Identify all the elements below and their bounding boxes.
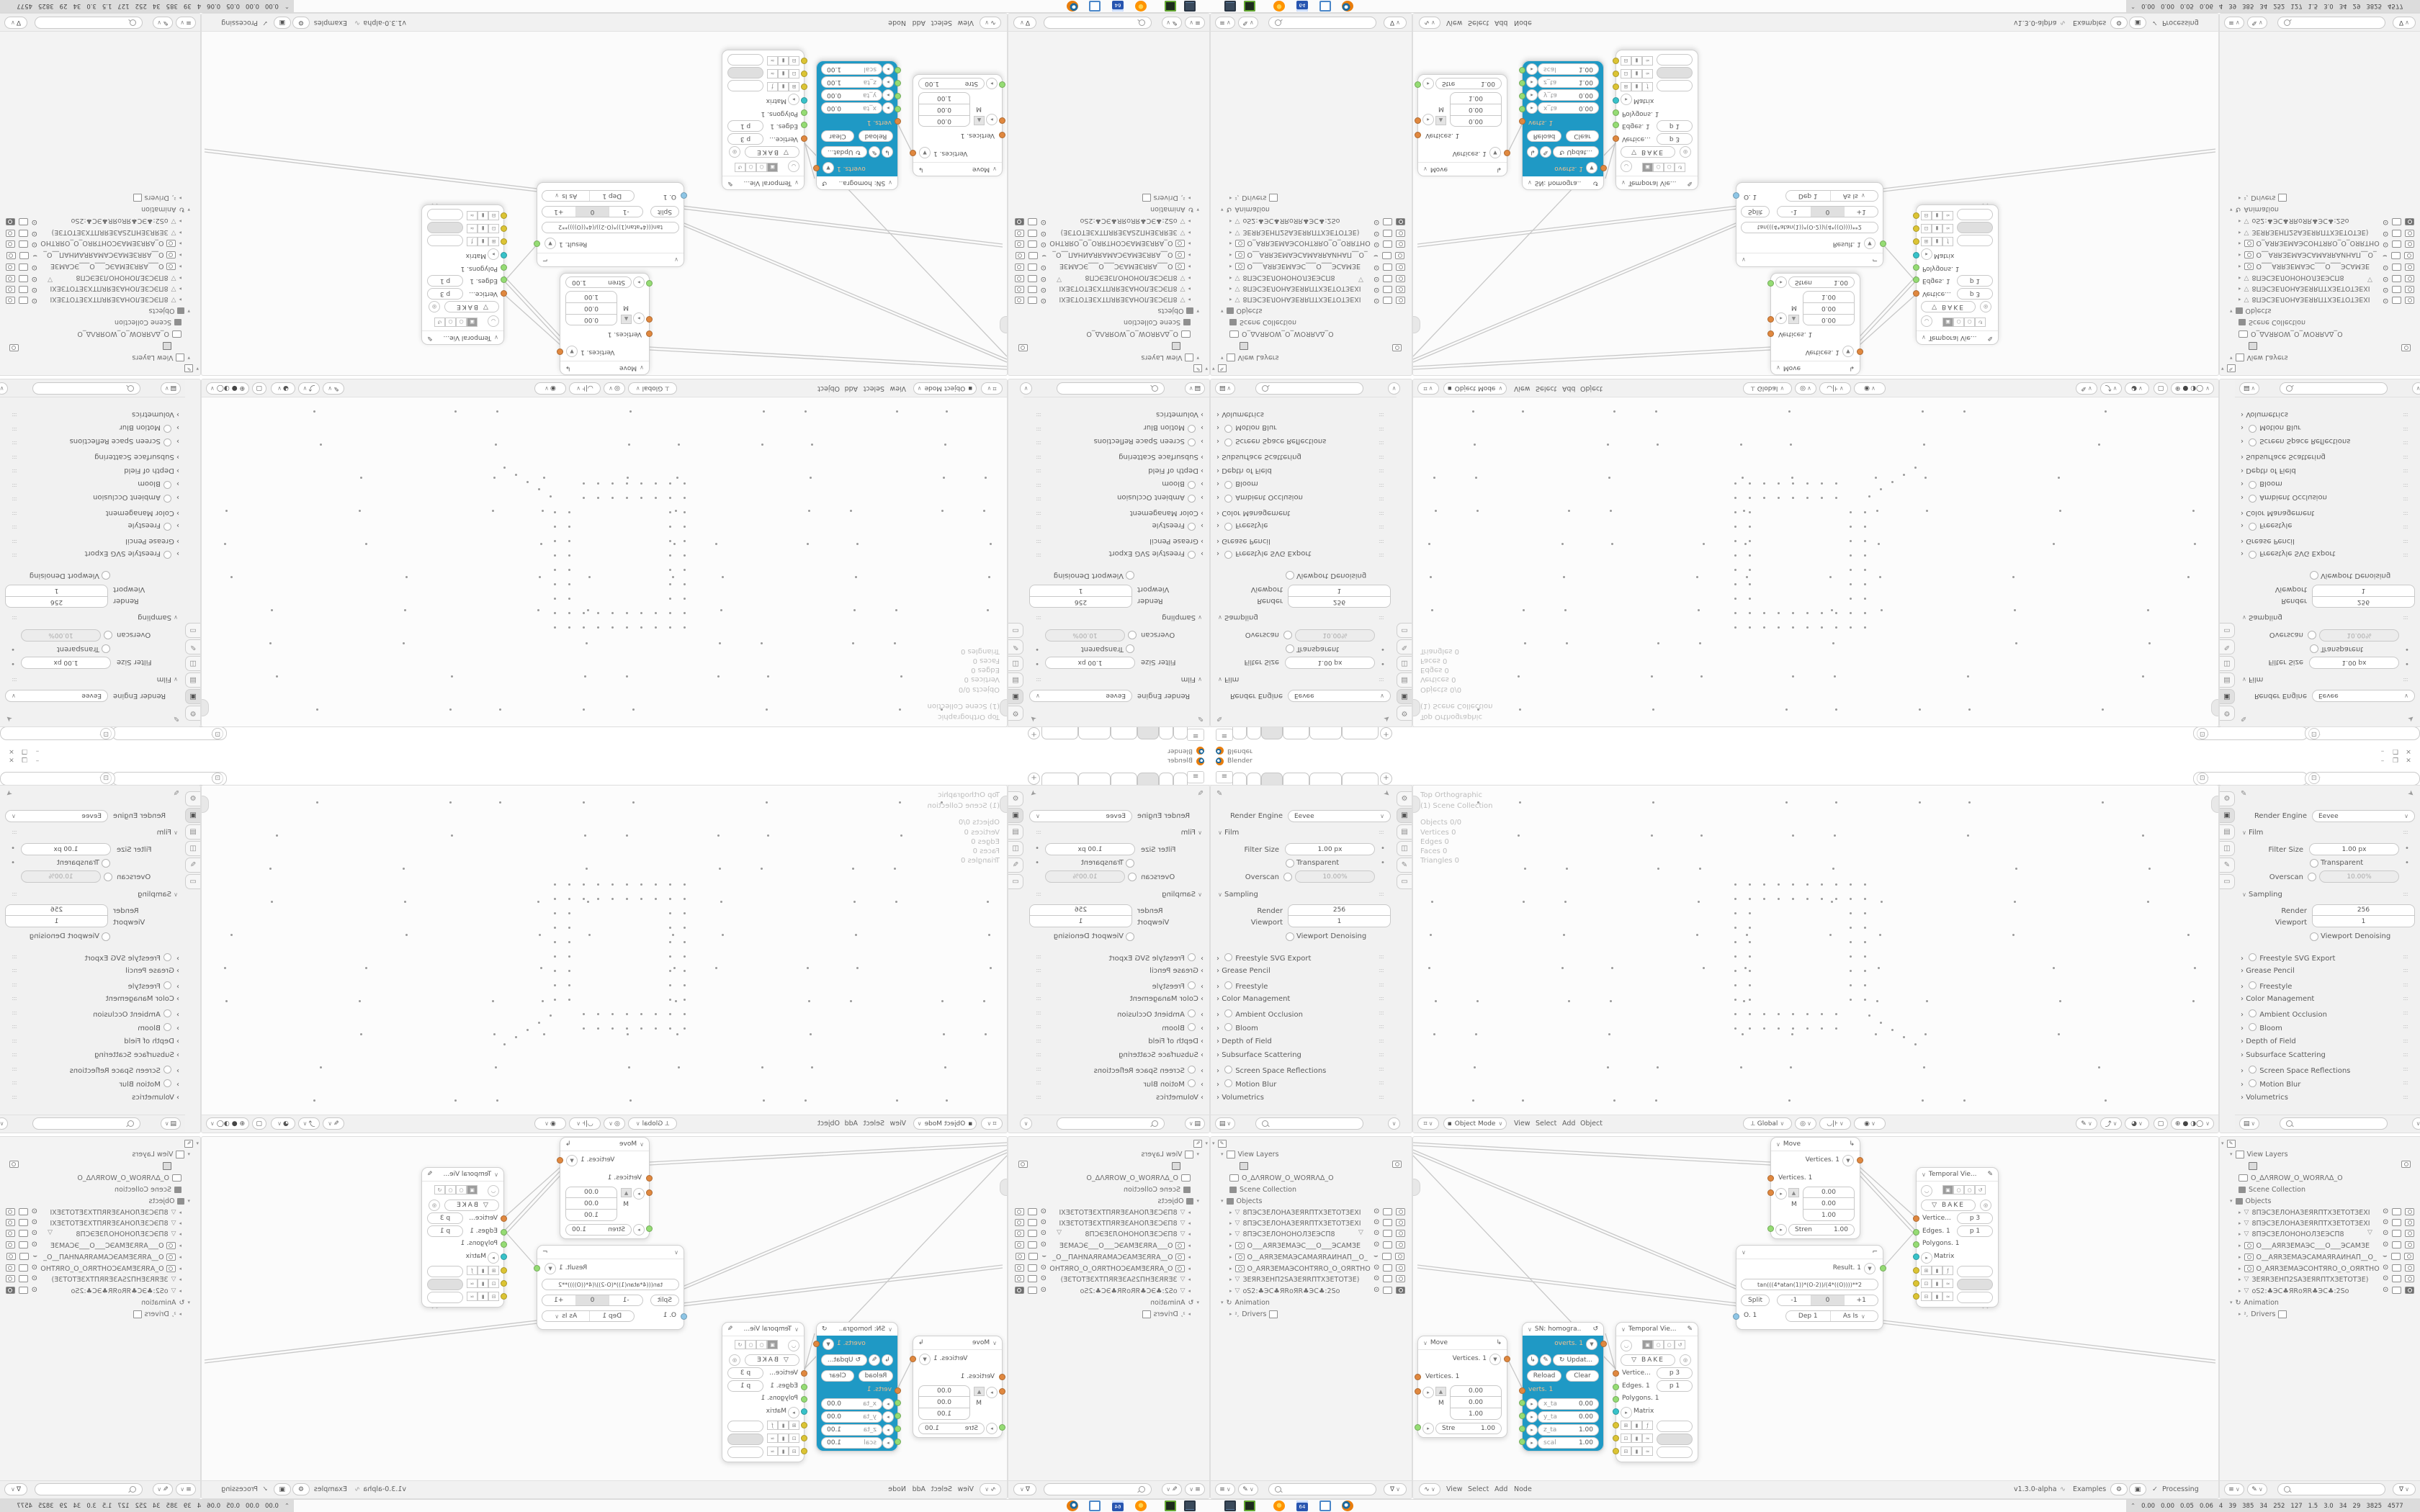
uv-row-buttons[interactable]: ⊡▮≈ bbox=[1621, 69, 1653, 78]
transform-orientation-dropdown[interactable]: ⟂ Global ∨ bbox=[1743, 382, 1792, 395]
input-socket[interactable] bbox=[501, 212, 507, 219]
node-editor[interactable]: ∨Move↳ Vertices. 1 ▼ Vertices. 1 ▸ ▲ M 0… bbox=[1412, 1136, 2219, 1499]
viewlayer-selector[interactable]: ▤∨ ⊡ bbox=[2305, 772, 2420, 786]
tree-row-animation[interactable]: ▾↻Animation bbox=[1221, 1297, 1270, 1308]
uv-field[interactable] bbox=[427, 1292, 463, 1303]
screen-icon[interactable] bbox=[1383, 1208, 1392, 1215]
copy-icon[interactable]: ⊡ bbox=[2308, 773, 2320, 784]
input-socket[interactable] bbox=[1613, 1370, 1619, 1377]
eye-icon[interactable]: ⊙ bbox=[1041, 240, 1047, 248]
vector-z-field[interactable]: 1.00 bbox=[1450, 1408, 1502, 1420]
input-socket[interactable] bbox=[501, 225, 507, 232]
tree-row-root[interactable]: ▾✎ bbox=[1212, 1138, 1227, 1148]
toggle-button[interactable]: ▸ bbox=[986, 1423, 998, 1434]
screen-icon[interactable] bbox=[1382, 1253, 1391, 1260]
image-viewer-icon[interactable] bbox=[1089, 1500, 1101, 1511]
output-socket[interactable] bbox=[534, 1265, 540, 1272]
uv-row-buttons[interactable]: ⊟▮≈ bbox=[467, 211, 499, 220]
uv-field[interactable] bbox=[427, 235, 463, 246]
sampling-section-header[interactable]: ∨ Sampling bbox=[138, 613, 178, 621]
toggle-button[interactable]: ▸ bbox=[1921, 248, 1932, 260]
uv-field[interactable] bbox=[1657, 1421, 1693, 1432]
reload-button[interactable]: Reload bbox=[859, 130, 893, 142]
section-row[interactable]: › Screen Space Reflections bbox=[2241, 437, 2350, 446]
object-row[interactable]: ▸▽ЗЕЯRЗЕНП2SАЗЕЯRПТХЗЕТОТЗЕ) bbox=[52, 1274, 181, 1284]
screen-icon[interactable] bbox=[1028, 287, 1037, 294]
sampling-section-header[interactable]: ∨ Sampling bbox=[1218, 891, 1258, 899]
camera-icon[interactable] bbox=[1015, 1219, 1024, 1226]
vector-y-field[interactable]: 0.00 bbox=[1450, 104, 1502, 115]
section-row[interactable]: › Depth of Field bbox=[2241, 1038, 2296, 1045]
vector-y-field[interactable]: 0.00 bbox=[1803, 1198, 1855, 1210]
section-row[interactable]: › Grease Pencil bbox=[2241, 537, 2295, 545]
search-input[interactable] bbox=[32, 1117, 140, 1130]
camera-icon[interactable] bbox=[1396, 1219, 1405, 1226]
transparent-checkbox[interactable] bbox=[102, 644, 110, 653]
proportional-edit-button[interactable]: ◉∨ bbox=[1854, 382, 1886, 395]
input-socket[interactable] bbox=[681, 1313, 687, 1320]
screen-icon[interactable] bbox=[1383, 1275, 1392, 1282]
tree-row-collection[interactable]: O_ΔΛЯROW_O_WOЯRΛΔ_O bbox=[1229, 1173, 1334, 1183]
uv-row-buttons[interactable]: ⊟▮≈ bbox=[1921, 211, 1953, 220]
uv-row-buttons[interactable]: ⊞▮ƒ bbox=[767, 1421, 799, 1430]
tab-tool-icon[interactable]: ⚙ bbox=[2220, 706, 2235, 721]
xray-button[interactable]: ▢ bbox=[2154, 1117, 2168, 1130]
toggle-button[interactable]: ▸ bbox=[633, 276, 645, 288]
input-socket[interactable] bbox=[1613, 1396, 1619, 1403]
object-row[interactable]: ▸▽8ПЭСЗЕЛОНАЗЕЯRПТХЗЕТОТЗЕХІ bbox=[1059, 294, 1191, 305]
node-editor[interactable]: ∨Move↳ Vertices. 1 ▼ Vertices. 1 ▸ ▲ M 0… bbox=[201, 1136, 1008, 1499]
node-editor[interactable]: ∨Move↳ Vertices. 1 ▼ Vertices. 1 ▸ ▲ M 0… bbox=[201, 13, 1008, 376]
tab-render-icon[interactable]: ▣ bbox=[2220, 689, 2235, 704]
render-engine-dropdown[interactable]: Eevee∨ bbox=[1288, 690, 1391, 702]
eye-icon[interactable]: ⊙ bbox=[1373, 1241, 1379, 1248]
section-row[interactable]: › Bloom bbox=[2241, 480, 2282, 489]
screen-icon[interactable] bbox=[19, 287, 28, 294]
eye-icon[interactable]: ⊙ bbox=[1041, 297, 1047, 305]
screen-icon[interactable] bbox=[1028, 1275, 1037, 1282]
eye-closed-icon[interactable]: ⌣ bbox=[2383, 252, 2388, 260]
x-translate-field[interactable]: x_ta0.00 bbox=[821, 102, 882, 114]
drag-handle-icon[interactable]: :::: bbox=[12, 677, 17, 683]
eye-icon[interactable]: ⊙ bbox=[32, 1264, 37, 1272]
section-row[interactable]: › Color Management bbox=[106, 509, 179, 517]
tab-world-icon[interactable]: ▭ bbox=[1397, 623, 1412, 638]
uv-row-buttons[interactable]: ⊡▮≈ bbox=[467, 1279, 499, 1288]
screen-icon[interactable] bbox=[19, 241, 28, 248]
eye-closed-icon[interactable]: ⌣ bbox=[2383, 1252, 2388, 1260]
section-row[interactable]: › Grease Pencil bbox=[1149, 537, 1204, 545]
camera-icon[interactable] bbox=[1395, 253, 1404, 260]
editor-type-button[interactable]: ⌗∨ bbox=[1417, 1117, 1439, 1130]
toolbar-collapse-handle[interactable] bbox=[1413, 1179, 1420, 1196]
overscan-checkbox[interactable] bbox=[1283, 873, 1292, 881]
input-socket[interactable] bbox=[1519, 67, 1525, 73]
funnel-icon[interactable]: ▽ bbox=[1057, 276, 1062, 283]
input-socket[interactable] bbox=[501, 252, 507, 258]
screen-icon[interactable] bbox=[19, 1264, 28, 1272]
transparent-checkbox[interactable] bbox=[1126, 644, 1134, 653]
section-row[interactable]: › Depth of Field bbox=[1148, 467, 1204, 474]
tab-scene-icon[interactable]: ✎ bbox=[2220, 858, 2235, 873]
copy-icon[interactable]: ⊡ bbox=[212, 773, 223, 784]
object-row[interactable]: ▸О_АЯRЗЕМАЭСОНТЯRО_О_ОЯRТНО bbox=[2238, 238, 2380, 248]
vertices-count[interactable]: p 3 bbox=[427, 288, 463, 300]
camera-icon[interactable] bbox=[1396, 1230, 1405, 1237]
toggle-button[interactable]: ▸ bbox=[1775, 1188, 1787, 1200]
search-input[interactable] bbox=[1057, 1117, 1165, 1130]
node-move-2[interactable]: ∨Move↳ Vertices. 1 ▼ Vertices. 1 ▸ ▲ M 0… bbox=[560, 1137, 650, 1239]
input-socket[interactable] bbox=[801, 1396, 807, 1403]
screen-icon[interactable] bbox=[1028, 1219, 1037, 1226]
up-button[interactable]: ▲ bbox=[1788, 315, 1799, 324]
section-row[interactable]: › Motion Blur bbox=[2241, 423, 2300, 433]
snap-target-button[interactable]: ◎∨ bbox=[1795, 1117, 1816, 1130]
tree-row-objects[interactable]: ▾Objects bbox=[1221, 306, 1262, 316]
input-socket[interactable] bbox=[1767, 280, 1774, 287]
object-row[interactable]: ▸▽8ПЭСЗЕЛОНОНОЛЗЕЭСП8 bbox=[1085, 1229, 1191, 1239]
camera-icon[interactable] bbox=[1396, 1241, 1405, 1248]
toolbar-collapse-handle[interactable] bbox=[1000, 1179, 1007, 1196]
toggle-button[interactable]: ▸ bbox=[1526, 102, 1538, 114]
section-row[interactable]: › Grease Pencil bbox=[1149, 967, 1204, 975]
tab-scene-icon[interactable]: ✎ bbox=[1008, 639, 1023, 654]
section-row[interactable]: › Freestyle SVG Export bbox=[85, 953, 179, 963]
input-socket[interactable] bbox=[895, 118, 901, 125]
search-input[interactable] bbox=[1268, 17, 1376, 29]
section-row[interactable]: › Subsurface Scattering bbox=[2241, 1051, 2326, 1059]
section-row[interactable]: › Depth of Field bbox=[1216, 467, 1272, 474]
socket-dropdown[interactable]: ▼ bbox=[1842, 346, 1854, 357]
screen-icon[interactable] bbox=[2392, 1241, 2401, 1248]
section-row[interactable]: › Ambient Occlusion bbox=[2241, 1009, 2327, 1019]
reset-button[interactable]: ◎ bbox=[1980, 301, 1991, 312]
render-engine-dropdown[interactable]: Eevee∨ bbox=[1029, 810, 1132, 822]
close-button[interactable]: ✕ bbox=[2404, 747, 2413, 755]
transparent-checkbox[interactable] bbox=[2310, 644, 2318, 653]
toggle-button[interactable]: ▸ bbox=[633, 1224, 645, 1236]
vector-x-field[interactable]: 0.00 bbox=[1803, 314, 1855, 325]
workspace-tab-active[interactable] bbox=[1137, 773, 1159, 786]
camera-icon[interactable] bbox=[6, 241, 15, 248]
section-row[interactable]: › Freestyle SVG Export bbox=[85, 549, 179, 559]
xray-button[interactable]: ▢ bbox=[252, 1117, 266, 1130]
sampling-section-header[interactable]: ∨ Sampling bbox=[1162, 613, 1202, 621]
camera-icon-active[interactable] bbox=[2405, 219, 2414, 226]
tree-row-viewlayer-item[interactable] bbox=[163, 1161, 171, 1171]
gizmo-button[interactable]: ⤴∨ bbox=[2100, 1117, 2122, 1130]
up-button[interactable]: ▲ bbox=[974, 116, 985, 125]
filter-button[interactable]: ∇∨ bbox=[2393, 1483, 2416, 1495]
add-workspace-button[interactable]: + bbox=[1028, 727, 1040, 739]
screenshot-app-icon[interactable] bbox=[1224, 1500, 1236, 1511]
copy-icon[interactable]: ⊡ bbox=[2308, 728, 2320, 739]
tree-row-scene-collection[interactable]: Scene Collection bbox=[1124, 1184, 1191, 1194]
viewport-denoising-checkbox[interactable] bbox=[2310, 571, 2318, 580]
input-socket[interactable] bbox=[1613, 84, 1619, 90]
tab-scene-icon[interactable]: ✎ bbox=[1397, 858, 1412, 873]
menu-select[interactable]: Select bbox=[1468, 1485, 1489, 1493]
tree-row-animation[interactable]: ▾↻Animation bbox=[141, 204, 190, 215]
output-socket[interactable] bbox=[557, 348, 563, 355]
section-row[interactable]: › Subsurface Scattering bbox=[94, 453, 179, 461]
camera-icon[interactable] bbox=[6, 1208, 15, 1215]
workspace-tab[interactable] bbox=[1309, 726, 1342, 739]
overscan-checkbox[interactable] bbox=[2308, 873, 2316, 881]
section-row[interactable]: › Bloom bbox=[2241, 1023, 2282, 1032]
display-mode-button[interactable]: ≡∨ bbox=[1185, 17, 1205, 29]
image-viewer-icon[interactable] bbox=[1319, 1, 1331, 12]
camera-icon[interactable] bbox=[2405, 1275, 2414, 1282]
overscan-checkbox[interactable] bbox=[1283, 631, 1292, 639]
film-section-header[interactable]: ∨ Film bbox=[1181, 829, 1202, 837]
section-row[interactable]: › Depth of Field bbox=[1148, 1038, 1204, 1045]
screen-icon[interactable] bbox=[1383, 1219, 1392, 1226]
node-editor[interactable]: ∨Move↳ Vertices. 1 ▼ Vertices. 1 ▸ ▲ M 0… bbox=[1412, 13, 2219, 376]
vector-z-field[interactable]: 1.00 bbox=[1450, 92, 1502, 104]
tab-world-icon[interactable]: ▭ bbox=[185, 623, 200, 638]
input-socket[interactable] bbox=[1519, 106, 1525, 112]
socket-dropdown[interactable]: ▼ bbox=[544, 1263, 556, 1274]
pin-icon[interactable]: ➤ bbox=[1028, 789, 1038, 799]
viewport-denoising-checkbox[interactable] bbox=[1126, 571, 1134, 580]
screen-icon[interactable] bbox=[19, 1241, 28, 1248]
addon-window-button[interactable]: ▣ bbox=[2129, 17, 2146, 29]
floppy64-app-icon[interactable]: 64 bbox=[1296, 1, 1308, 12]
editor-type-button[interactable]: ▤∨ bbox=[1215, 382, 1235, 395]
camera-icon-active[interactable] bbox=[1396, 219, 1405, 226]
tree-row-collection[interactable]: O_ΔΛЯROW_O_WOЯRΛΔ_O bbox=[1086, 329, 1191, 339]
camera-icon[interactable] bbox=[1015, 297, 1024, 305]
tab-viewlayer-icon[interactable]: ◫ bbox=[2220, 656, 2235, 671]
pin-icon[interactable]: ➤ bbox=[2406, 789, 2415, 799]
object-row[interactable]: ▸▽8ПЭСЗЕЛОНОНОЛЗЕЭСП8 bbox=[1085, 273, 1191, 283]
pin-icon[interactable]: ➤ bbox=[4, 789, 14, 799]
workspace-tab-active[interactable] bbox=[1261, 726, 1283, 739]
input-socket[interactable] bbox=[501, 1229, 507, 1236]
object-row[interactable]: ▸▽8ПЭСЗЕЛОНОНОЛЗЕЭСП8 bbox=[76, 273, 181, 283]
row-icons[interactable] bbox=[1392, 1161, 1402, 1168]
uv-row-buttons[interactable]: ⊟▮≈ bbox=[767, 1446, 799, 1456]
filter-id-button[interactable]: ✎∨ bbox=[1162, 17, 1182, 29]
camera-icon[interactable] bbox=[1392, 1161, 1402, 1168]
input-socket[interactable] bbox=[1613, 122, 1619, 128]
camera-icon[interactable] bbox=[6, 264, 15, 271]
eye-icon[interactable]: ⊙ bbox=[1373, 1229, 1379, 1237]
update-button[interactable]: ↻ Updat... bbox=[1553, 146, 1599, 158]
menu-view[interactable]: View bbox=[889, 1120, 906, 1128]
toggle-button[interactable]: ▸ bbox=[633, 1188, 645, 1200]
preview-button[interactable]: ◡ bbox=[1621, 1340, 1632, 1351]
toggle-button[interactable]: ▸ bbox=[1526, 1437, 1538, 1449]
drag-handle-icon[interactable]: :::: bbox=[2403, 677, 2408, 683]
menu-object[interactable]: Object bbox=[817, 384, 840, 392]
close-button[interactable]: ✕ bbox=[7, 757, 16, 765]
section-row[interactable]: › Subsurface Scattering bbox=[94, 1051, 179, 1059]
addon-window-button[interactable]: ▣ bbox=[274, 1483, 291, 1495]
menu-icon[interactable]: ≡ bbox=[1187, 729, 1204, 741]
camera-icon[interactable] bbox=[2401, 344, 2411, 351]
sampling-viewport-field[interactable]: 1 bbox=[1029, 585, 1132, 596]
section-row[interactable]: › Motion Blur bbox=[2241, 1079, 2300, 1089]
uv-field-active[interactable] bbox=[1957, 222, 1993, 233]
section-row[interactable]: › Grease Pencil bbox=[125, 537, 179, 545]
filter-id-button[interactable]: ✎∨ bbox=[2247, 17, 2267, 29]
transparent-checkbox[interactable] bbox=[1286, 859, 1294, 868]
tree-row-scene-collection[interactable]: Scene Collection bbox=[2238, 318, 2305, 328]
tree-row-scene-collection[interactable]: Scene Collection bbox=[1124, 318, 1191, 328]
pin-icon[interactable]: ➤ bbox=[1028, 714, 1038, 724]
proportional-edit-button[interactable]: ◉∨ bbox=[534, 1117, 566, 1130]
depth-segment[interactable]: Dep 1 As Is∨ bbox=[1785, 190, 1878, 202]
input-socket[interactable] bbox=[1913, 1241, 1919, 1248]
snap-magnet-button[interactable]: ◡|⊦∨ bbox=[569, 1117, 601, 1130]
toggle-button[interactable]: ▸ bbox=[1422, 114, 1434, 125]
gizmo-button[interactable]: ⤴∨ bbox=[298, 382, 320, 395]
workspace-tab[interactable] bbox=[1111, 773, 1137, 786]
filter-id-button[interactable]: ✎∨ bbox=[1238, 17, 1258, 29]
menu-view[interactable]: View bbox=[1514, 384, 1531, 392]
scale-field[interactable]: scal1.00 bbox=[1538, 1437, 1599, 1449]
input-socket[interactable] bbox=[1415, 81, 1421, 88]
screen-icon[interactable] bbox=[1383, 1230, 1392, 1237]
z-translate-field[interactable]: z_ta1.00 bbox=[1538, 1424, 1599, 1436]
search-input[interactable] bbox=[1057, 382, 1165, 395]
uv-row-buttons[interactable]: ⊡▮≈ bbox=[1921, 224, 1953, 233]
curve-button[interactable]: ↳ bbox=[1527, 1354, 1538, 1366]
image-viewer-icon[interactable] bbox=[1319, 1500, 1331, 1511]
section-row[interactable]: › Screen Space Reflections bbox=[1216, 437, 1326, 446]
object-row[interactable]: ▸▽8ПЭСЗЕЛОНАЗЕЯRПТХЗЕТОТЗЕХІ bbox=[1229, 1218, 1361, 1228]
input-socket[interactable] bbox=[1913, 1280, 1919, 1287]
input-socket[interactable] bbox=[1613, 1384, 1619, 1390]
eye-icon[interactable]: ⊙ bbox=[32, 1274, 37, 1282]
search-input[interactable] bbox=[2277, 1483, 2385, 1495]
object-row[interactable]: ▸▽ЗЕЯRЗЕНП2SАЗЕЯRПТХЗЕТОТЗЕ) bbox=[2238, 1274, 2368, 1284]
maximize-button[interactable]: ❐ bbox=[20, 747, 29, 755]
edges-count[interactable]: p 1 bbox=[427, 1225, 463, 1237]
vector-y-field[interactable]: 0.00 bbox=[565, 302, 617, 314]
search-input[interactable] bbox=[1044, 1483, 1152, 1495]
toggle-button[interactable]: ▸ bbox=[1775, 1224, 1787, 1236]
pin-icon[interactable]: ➤ bbox=[4, 714, 14, 724]
proportional-edit-button[interactable]: ◉∨ bbox=[1854, 1117, 1886, 1130]
tab-viewlayer-icon[interactable]: ◫ bbox=[185, 841, 200, 856]
offset-segment[interactable]: -1 0 +1 bbox=[542, 1295, 643, 1306]
input-socket[interactable] bbox=[801, 1422, 807, 1428]
filter-size-field[interactable]: 1.00 px bbox=[21, 843, 111, 855]
filter-button[interactable]: ∇∨ bbox=[2393, 17, 2416, 29]
z-translate-field[interactable]: z_ta1.00 bbox=[1538, 76, 1599, 88]
workspace-tab[interactable] bbox=[1173, 726, 1188, 739]
toggle-button[interactable]: ▸ bbox=[488, 1252, 499, 1264]
screen-icon[interactable] bbox=[2392, 230, 2401, 238]
viewport-denoising-checkbox[interactable] bbox=[102, 571, 110, 580]
screen-icon[interactable] bbox=[1028, 1287, 1037, 1294]
scene-name-input[interactable] bbox=[158, 729, 209, 737]
pen-button[interactable]: ✎ bbox=[869, 146, 880, 158]
object-row[interactable]: ▸▽оS2:♣ЭС♣ЯRоЯR♣ЭС♣:2Sо bbox=[1229, 216, 1340, 226]
filter-id-button[interactable]: ✎∨ bbox=[1238, 1483, 1258, 1495]
snap-target-button[interactable]: ◎∨ bbox=[604, 382, 625, 395]
node-move-2[interactable]: ∨Move↳ Vertices. 1 ▼ Vertices. 1 ▸ ▲ M 0… bbox=[560, 273, 650, 375]
object-row[interactable]: ▸О__АЯRЗЕМАЭСАМАЯRАИНАП__О_ bbox=[1229, 1252, 1368, 1262]
output-socket[interactable] bbox=[534, 240, 540, 247]
image-viewer-icon[interactable] bbox=[1089, 1, 1101, 12]
tree-row-objects[interactable]: ▾Objects bbox=[2230, 1196, 2271, 1206]
input-socket[interactable] bbox=[501, 1215, 507, 1222]
depth-segment[interactable]: Dep 1 As Is∨ bbox=[542, 1310, 635, 1322]
tree-row-animation[interactable]: ▾↻Animation bbox=[1150, 204, 1199, 215]
addon-prefs-button[interactable]: ⚙ bbox=[292, 1483, 310, 1495]
eye-icon[interactable]: ⊙ bbox=[1041, 264, 1047, 271]
camera-icon[interactable] bbox=[1018, 1161, 1028, 1168]
uv-row-buttons[interactable]: ⊞▮ƒ bbox=[1921, 1266, 1953, 1275]
object-row[interactable]: ▸▽8ПЭСЗЕЛОНАЗЕЯRПТХЗЕТОТЗЕХІ bbox=[50, 1218, 181, 1228]
object-row[interactable]: ▸▽8ПЭСЗЕЛОНАЗЕЯRПТХЗЕТОТЗЕХІ bbox=[50, 1207, 181, 1218]
transparent-checkbox[interactable] bbox=[102, 859, 110, 868]
section-row[interactable]: › Volumetrics bbox=[132, 1094, 179, 1102]
uv-field[interactable] bbox=[1957, 235, 1993, 246]
package-app-icon[interactable] bbox=[1165, 1, 1176, 12]
vector-z-field[interactable]: 1.00 bbox=[1803, 291, 1855, 302]
section-row[interactable]: › Bloom bbox=[1162, 480, 1204, 489]
camera-icon[interactable] bbox=[1015, 264, 1024, 271]
sampling-render-field[interactable]: 256 bbox=[5, 904, 108, 916]
menu-select[interactable]: Select bbox=[931, 19, 952, 27]
object-row[interactable]: ▸О__АЯRЗЕМАЭСАМАЯRАИНАП__О_ bbox=[2238, 250, 2377, 260]
filter-id-button[interactable]: ✎∨ bbox=[2247, 1483, 2267, 1495]
tree-row-viewlayer-item[interactable] bbox=[1172, 341, 1180, 351]
editor-type-button[interactable]: ▤∨ bbox=[1185, 1117, 1205, 1130]
uv-row-buttons[interactable]: ⊞▮ƒ bbox=[467, 237, 499, 246]
object-row[interactable]: ▸▽8ПЭСЗЕЛОНОНОЛЗЕЭСП8 bbox=[2238, 273, 2344, 283]
copy-icon[interactable]: ⊡ bbox=[100, 773, 112, 784]
menu-icon[interactable]: ≡ bbox=[1216, 771, 1233, 783]
tab-viewlayer-icon[interactable]: ◫ bbox=[1397, 656, 1412, 671]
funnel-icon[interactable]: ▽ bbox=[2367, 276, 2372, 283]
tree-row-root[interactable]: ▾✎ bbox=[2221, 364, 2236, 374]
vector-z-field[interactable]: 1.00 bbox=[918, 1408, 970, 1420]
vertices-count[interactable]: p 3 bbox=[1957, 288, 1993, 300]
workspace-tab[interactable] bbox=[1283, 773, 1309, 786]
socket-dropdown[interactable]: ▼ bbox=[1489, 1354, 1501, 1365]
input-socket[interactable] bbox=[801, 1384, 807, 1390]
input-socket[interactable] bbox=[1913, 264, 1919, 271]
pen-button[interactable]: ✎ bbox=[1540, 146, 1551, 158]
eye-icon[interactable]: ⊙ bbox=[1041, 1241, 1047, 1248]
snap-magnet-button[interactable]: ◡|⊦∨ bbox=[1819, 1117, 1851, 1130]
up-button[interactable]: ▲ bbox=[621, 315, 632, 324]
tree-row-viewlayer-item[interactable] bbox=[163, 341, 171, 351]
preview-button[interactable]: ◡ bbox=[788, 161, 799, 172]
uv-row-buttons[interactable]: ⊟▮≈ bbox=[1921, 1292, 1953, 1301]
object-row[interactable]: ▸▽оS2:♣ЭС♣ЯRоЯR♣ЭС♣:2Sо bbox=[2238, 216, 2349, 226]
display-mode-button[interactable]: ≡∨ bbox=[2224, 17, 2244, 29]
input-socket[interactable] bbox=[1613, 109, 1619, 116]
node-move-1[interactable]: ∨Move↳ Vertices. 1 ▼ Vertices. 1 ▸ ▲ M 0… bbox=[913, 74, 1003, 176]
input-socket[interactable] bbox=[646, 1189, 653, 1196]
node-move-2[interactable]: ∨Move↳ Vertices. 1 ▼ Vertices. 1 ▸ ▲ M 0… bbox=[1770, 1137, 1860, 1239]
input-socket[interactable] bbox=[801, 71, 807, 77]
tree-row-animation[interactable]: ▾↻Animation bbox=[1150, 1297, 1199, 1308]
screen-icon[interactable] bbox=[1383, 276, 1392, 283]
overlays-button[interactable]: ◕∨ bbox=[271, 1117, 295, 1130]
tree-row-collection[interactable]: O_ΔΛЯROW_O_WOЯRΛΔ_O bbox=[2238, 1173, 2343, 1183]
section-row[interactable]: › Screen Space Reflections bbox=[1094, 1066, 1204, 1075]
annotate-button[interactable]: ✎∨ bbox=[323, 1117, 344, 1130]
toggle-button[interactable]: ▸ bbox=[788, 94, 799, 105]
